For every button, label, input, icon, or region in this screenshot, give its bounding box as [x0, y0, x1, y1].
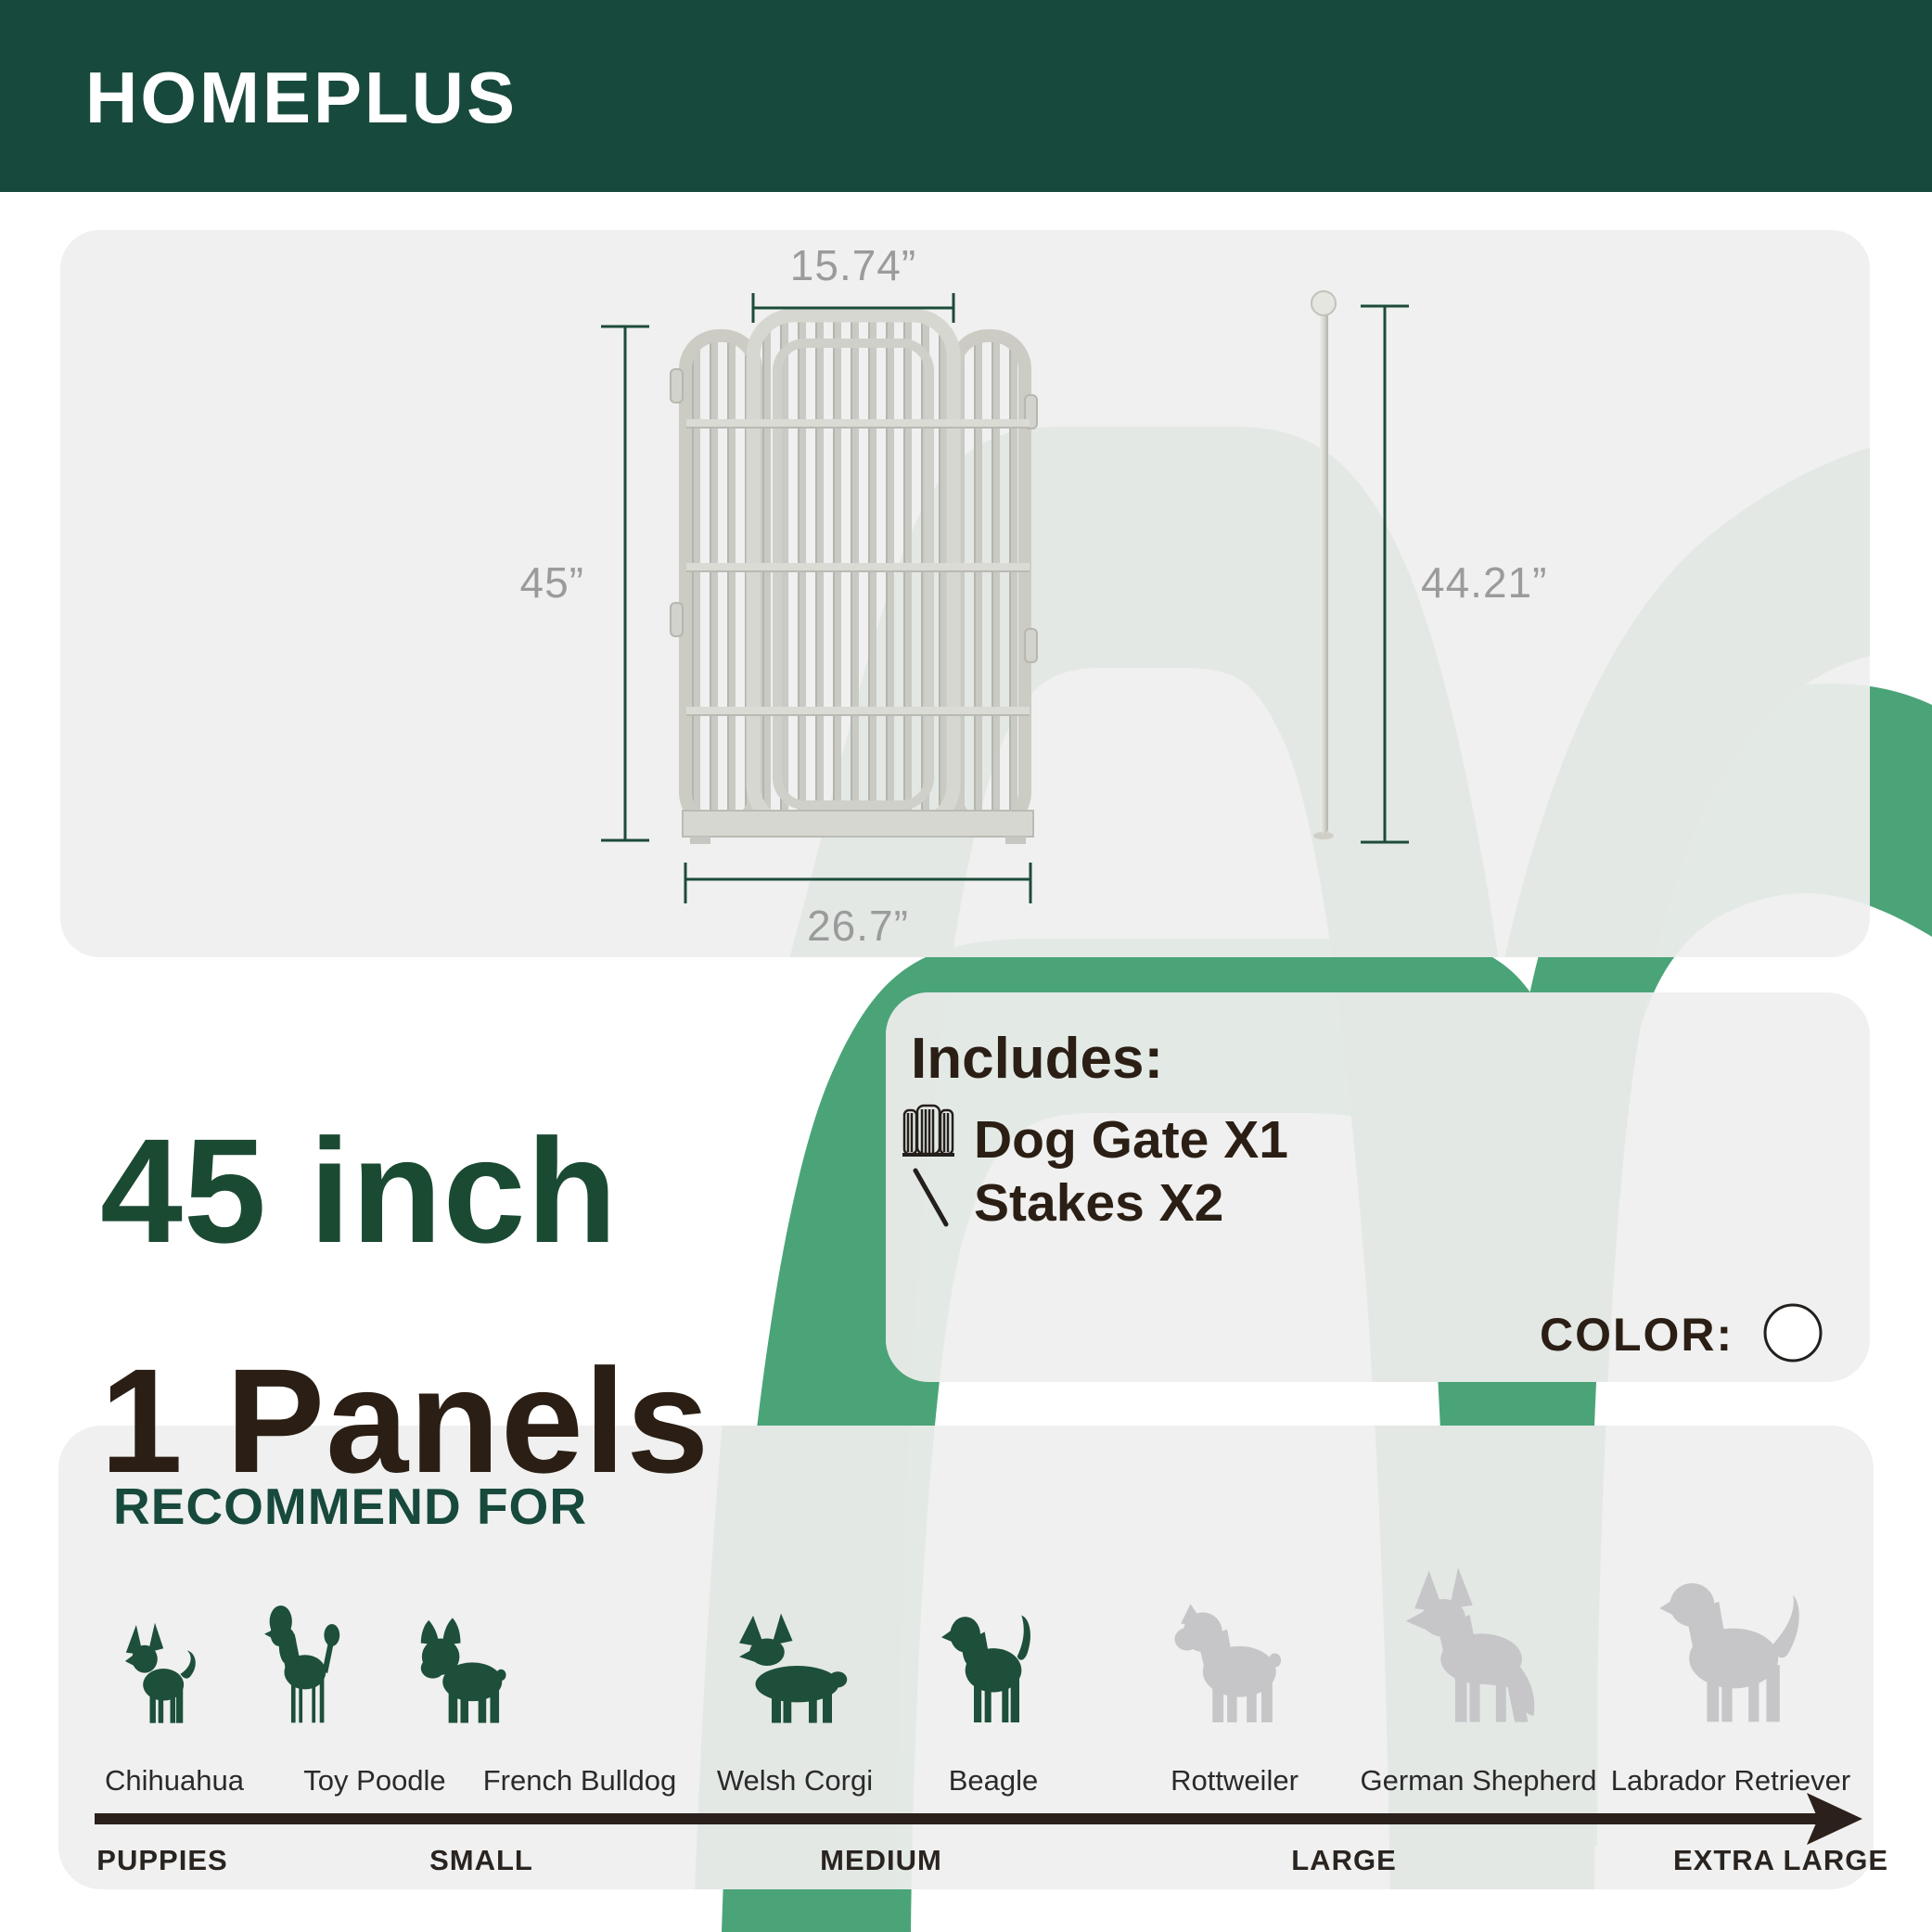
size-label-puppies: PUPPIES: [23, 1844, 301, 1877]
size-label-large: LARGE: [1205, 1844, 1483, 1877]
size-label-extra-large: EXTRA LARGE: [1642, 1844, 1920, 1877]
size-axis-arrow: [0, 0, 1932, 1932]
size-label-medium: MEDIUM: [742, 1844, 1020, 1877]
size-label-small: SMALL: [342, 1844, 621, 1877]
